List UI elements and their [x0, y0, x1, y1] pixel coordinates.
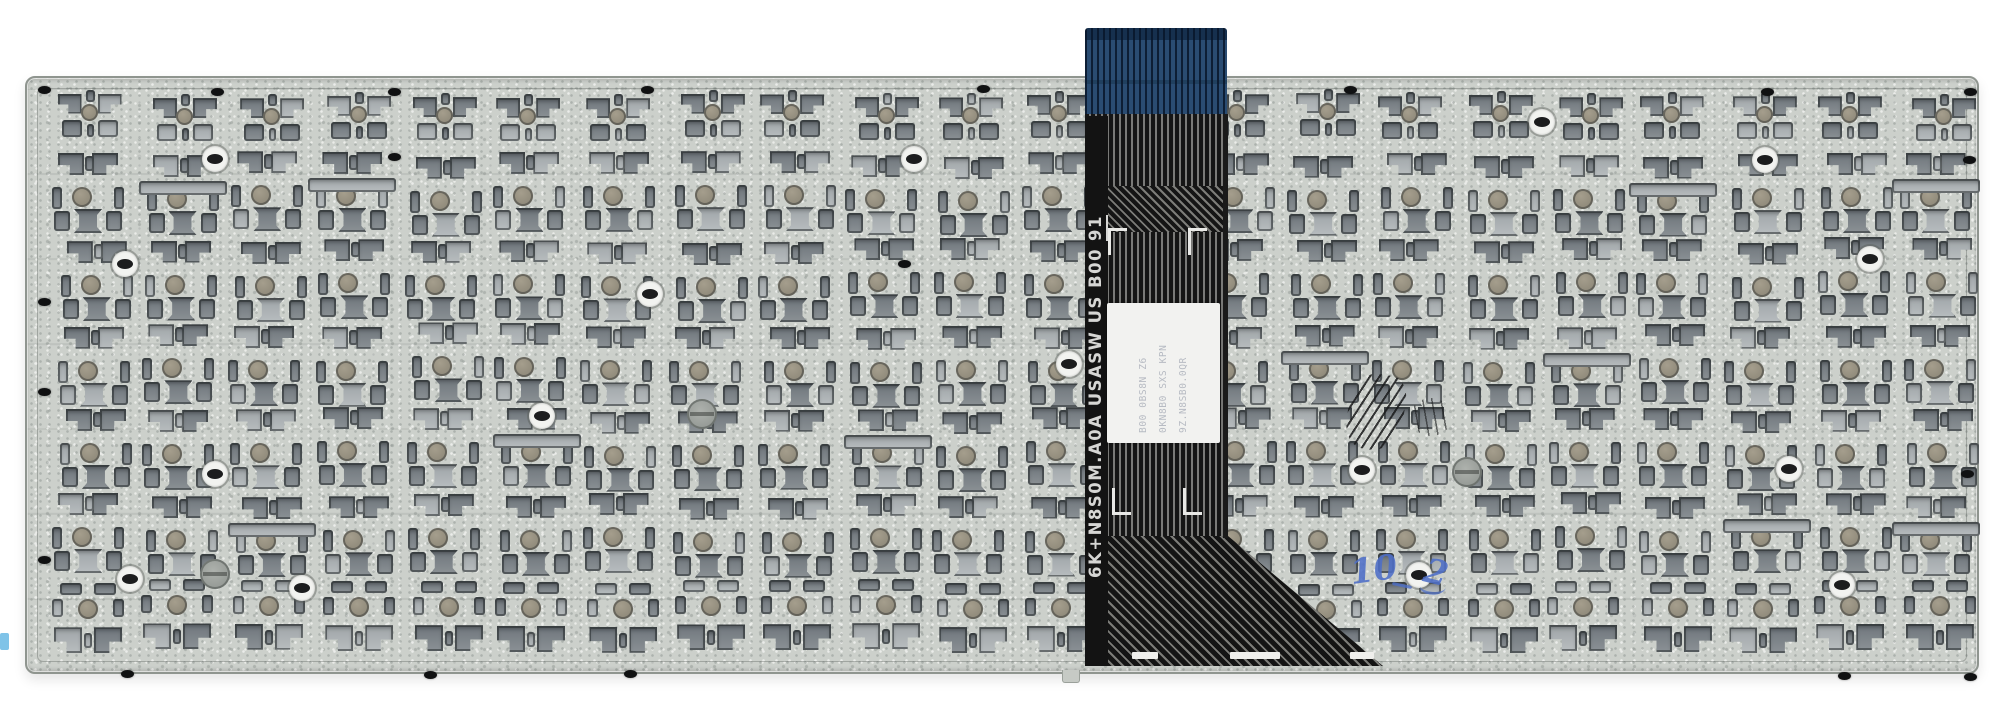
cutout-shape — [1497, 91, 1506, 103]
cutout-shape — [142, 358, 152, 380]
cutout-shape — [60, 443, 70, 465]
cutout-shape — [701, 596, 721, 616]
cutout-shape — [761, 596, 772, 614]
cutout-shape — [410, 191, 420, 213]
cutout-shape — [1835, 444, 1855, 464]
screw-hole-ring — [1056, 351, 1082, 377]
cutout-shape — [1680, 122, 1700, 139]
cutout-shape — [1618, 272, 1628, 294]
cutout-shape — [969, 329, 978, 344]
cutout-shape — [537, 626, 565, 652]
rivet-hole — [641, 86, 654, 94]
cutout-shape — [1412, 326, 1438, 348]
key-mount-cluster — [761, 580, 833, 660]
key-mount-cluster — [1549, 408, 1621, 490]
cutout-shape — [956, 360, 976, 380]
key-mount-cluster — [1465, 91, 1537, 143]
cutout-shape — [899, 213, 915, 233]
cutout-shape — [1250, 385, 1266, 405]
cutout-shape — [527, 632, 535, 647]
cutout-shape — [600, 360, 620, 380]
label-text-line: B00 0BS8N Z6 — [1138, 313, 1149, 433]
cutout-shape — [1498, 413, 1507, 428]
cutout-shape — [316, 361, 326, 383]
cutout-shape — [780, 298, 808, 322]
cutout-shape — [324, 239, 350, 261]
cutout-shape — [1046, 296, 1074, 320]
cutout-shape — [581, 276, 591, 298]
key-mount-cluster — [1469, 495, 1541, 577]
cutout-shape — [587, 242, 613, 264]
cutout-shape — [464, 215, 480, 235]
key-mount-cluster — [493, 240, 565, 322]
cutout-shape — [199, 299, 215, 319]
cutout-shape — [974, 238, 1000, 260]
wide-key-bar — [1629, 183, 1717, 197]
rivet-hole — [1838, 672, 1851, 680]
cutout-shape — [1734, 301, 1750, 321]
cutout-shape — [1265, 187, 1275, 209]
cutout-shape — [143, 623, 171, 649]
cutout-shape — [1771, 493, 1797, 515]
cutout-shape — [626, 124, 646, 141]
cutout-shape — [804, 151, 830, 173]
cutout-shape — [1492, 105, 1509, 122]
cutout-shape — [204, 358, 214, 380]
cutout-shape — [416, 157, 442, 179]
cutout-shape — [258, 553, 286, 577]
rivet-hole — [624, 670, 637, 678]
cutout-shape — [1822, 551, 1838, 571]
cutout-shape — [614, 94, 623, 106]
key-mount-cluster — [1639, 497, 1711, 579]
cutout-shape — [58, 493, 84, 515]
cutout-shape — [157, 124, 177, 141]
cutout-shape — [1416, 495, 1442, 517]
cutout-shape — [1607, 213, 1623, 233]
cutout-shape — [469, 442, 479, 464]
cutout-shape — [768, 498, 794, 520]
key-mount-cluster — [1468, 583, 1540, 663]
cutout-shape — [336, 361, 356, 381]
fiducial-mark — [1183, 488, 1202, 515]
cutout-shape — [67, 241, 93, 263]
cutout-shape — [1645, 497, 1671, 519]
cutout-shape — [675, 327, 701, 349]
cutout-shape — [513, 186, 533, 206]
cutout-shape — [114, 467, 130, 487]
screw-hole-ring — [202, 146, 228, 172]
cutout-shape — [770, 151, 796, 173]
cutout-shape — [356, 126, 363, 139]
cutout-shape — [228, 360, 238, 382]
cutout-shape — [1610, 296, 1626, 316]
cutout-shape — [721, 94, 745, 114]
cutout-shape — [1471, 553, 1487, 573]
key-mount-cluster — [1636, 92, 1708, 144]
cutout-shape — [797, 330, 806, 345]
cutout-shape — [692, 445, 712, 465]
cutout-shape — [954, 272, 974, 292]
cutout-shape — [114, 187, 124, 209]
cutout-shape — [606, 468, 634, 492]
cutout-shape — [1418, 96, 1442, 116]
rivet-hole — [1961, 470, 1974, 478]
cutout-shape — [442, 127, 449, 140]
cutout-shape — [1821, 187, 1831, 209]
cutout-shape — [1435, 211, 1451, 231]
cutout-shape — [1531, 529, 1541, 551]
cutout-shape — [960, 213, 988, 237]
cutout-shape — [694, 467, 722, 491]
cutout-shape — [735, 532, 745, 554]
cutout-shape — [818, 209, 834, 229]
cutout-shape — [430, 550, 458, 574]
cutout-shape — [82, 465, 110, 489]
cutout-shape — [605, 549, 633, 573]
cutout-shape — [427, 442, 447, 462]
cutout-shape — [1937, 328, 1946, 343]
cutout-shape — [586, 98, 610, 118]
cutout-shape — [63, 299, 79, 319]
cutout-shape — [764, 361, 774, 383]
cutout-shape — [1308, 463, 1336, 487]
cutout-shape — [1045, 531, 1065, 551]
cutout-shape — [795, 501, 804, 516]
cutout-shape — [556, 598, 567, 616]
cutout-shape — [736, 596, 747, 614]
cutout-shape — [1582, 411, 1591, 426]
cutout-shape — [1421, 153, 1447, 175]
key-mount-cluster — [764, 327, 836, 409]
cutout-shape — [1759, 633, 1767, 648]
cutout-shape — [173, 629, 181, 644]
cutout-shape — [826, 361, 836, 383]
cutout-shape — [621, 242, 647, 264]
cutout-shape — [453, 97, 477, 117]
cutout-shape — [1398, 441, 1418, 461]
cutout-shape — [1940, 412, 1949, 427]
cutout-shape — [818, 385, 834, 405]
cutout-shape — [537, 582, 559, 594]
cutout-shape — [1726, 385, 1742, 405]
cutout-shape — [601, 276, 621, 296]
cutout-shape — [1328, 496, 1354, 518]
cutout-shape — [1443, 187, 1453, 209]
cutout-shape — [852, 623, 880, 649]
cutout-shape — [432, 213, 460, 237]
cutout-shape — [1588, 127, 1595, 140]
cutout-shape — [147, 299, 163, 319]
cutout-shape — [165, 275, 185, 295]
cutout-shape — [1055, 91, 1064, 103]
cutout-shape — [1745, 445, 1765, 465]
cutout-shape — [427, 297, 455, 321]
key-mount-cluster — [1900, 153, 1972, 235]
cutout-shape — [797, 154, 806, 169]
rivet-hole — [424, 671, 437, 679]
cutout-shape — [1946, 624, 1974, 650]
cutout-shape — [1639, 466, 1655, 486]
cutout-shape — [292, 443, 302, 465]
cutout-shape — [1498, 125, 1505, 138]
cutout-shape — [1595, 492, 1621, 514]
cutout-shape — [1382, 122, 1402, 139]
cutout-shape — [1855, 410, 1881, 432]
cutout-shape — [944, 157, 970, 179]
cutout-shape — [990, 470, 1006, 490]
cutout-shape — [467, 275, 477, 297]
cutout-shape — [521, 598, 541, 618]
cutout-shape — [1599, 123, 1619, 140]
key-mount-cluster — [1555, 93, 1627, 145]
cutout-shape — [764, 120, 784, 137]
key-mount-cluster — [582, 94, 654, 146]
cutout-shape — [93, 412, 102, 427]
cutout-shape — [495, 210, 511, 230]
cutout-shape — [1491, 551, 1519, 575]
cutout-shape — [1747, 467, 1775, 491]
cutout-shape — [434, 378, 462, 402]
cutout-shape — [499, 240, 525, 262]
cutout-shape — [963, 599, 983, 619]
cutout-shape — [958, 191, 978, 211]
cutout-shape — [1558, 296, 1574, 316]
cutout-shape — [533, 240, 559, 262]
cutout-shape — [938, 470, 954, 490]
cutout-shape — [1551, 466, 1567, 486]
cutout-shape — [791, 245, 800, 260]
cutout-shape — [1556, 272, 1566, 294]
cutout-shape — [645, 186, 655, 208]
cutout-shape — [193, 124, 213, 141]
cutout-shape — [850, 296, 866, 316]
cutout-shape — [513, 274, 533, 294]
cutout-shape — [646, 446, 656, 468]
cutout-shape — [371, 465, 387, 485]
cutout-shape — [1297, 240, 1323, 262]
cutout-shape — [98, 327, 124, 349]
cutout-shape — [1320, 159, 1329, 174]
cutout-shape — [602, 382, 630, 406]
cutout-shape — [349, 155, 358, 170]
cutout-shape — [1353, 274, 1363, 296]
cutout-shape — [1735, 583, 1757, 595]
cutout-shape — [585, 210, 601, 230]
cutout-shape — [1502, 498, 1511, 513]
cutout-shape — [430, 191, 450, 211]
cutout-shape — [1823, 211, 1839, 231]
cutout-shape — [1405, 329, 1414, 344]
cutout-shape — [1419, 626, 1447, 652]
cutout-shape — [503, 466, 519, 486]
cutout-shape — [1874, 384, 1890, 404]
key-mount-cluster — [1636, 239, 1708, 321]
cutout-shape — [1057, 632, 1065, 647]
cutout-shape — [1578, 294, 1606, 318]
cutout-shape — [497, 626, 525, 652]
cutout-shape — [1605, 385, 1621, 405]
cutout-shape — [1549, 625, 1577, 651]
cutout-shape — [1409, 498, 1418, 513]
cutout-shape — [87, 124, 94, 137]
cutout-shape — [874, 465, 902, 489]
cutout-shape — [1669, 126, 1676, 139]
cutout-shape — [615, 128, 622, 141]
cutout-shape — [1668, 598, 1688, 618]
cutout-shape — [1485, 444, 1505, 464]
cutout-shape — [812, 300, 828, 320]
wide-key-bar — [493, 434, 581, 448]
cutout-shape — [697, 207, 725, 231]
cutout-shape — [554, 554, 570, 574]
cutout-shape — [1345, 298, 1361, 318]
cutout-shape — [1906, 383, 1922, 403]
cutout-shape — [1788, 599, 1799, 617]
cutout-shape — [411, 241, 437, 263]
cutout-shape — [1926, 272, 1946, 292]
cutout-shape — [1243, 153, 1269, 175]
key-mount-cluster — [851, 93, 923, 145]
cutout-shape — [1650, 582, 1672, 594]
cutout-shape — [782, 532, 802, 552]
cutout-shape — [1048, 463, 1076, 487]
cutout-shape — [522, 552, 550, 576]
cutout-shape — [241, 580, 263, 592]
cutout-shape — [1773, 96, 1797, 116]
cutout-shape — [62, 120, 82, 137]
cutout-shape — [52, 527, 62, 549]
cutout-shape — [1377, 598, 1388, 616]
cutout-shape — [179, 499, 188, 514]
cutout-shape — [58, 153, 84, 175]
cutout-shape — [74, 209, 102, 233]
cutout-shape — [436, 107, 453, 124]
cutout-shape — [1816, 624, 1844, 650]
cutout-shape — [269, 500, 278, 515]
screw-hole-ring — [1752, 147, 1778, 173]
key-mount-cluster — [850, 579, 922, 659]
cutout-shape — [562, 530, 572, 552]
cutout-shape — [1902, 554, 1918, 574]
cutout-shape — [1225, 209, 1253, 233]
cutout-shape — [1245, 407, 1271, 429]
cutout-shape — [1737, 122, 1757, 139]
cutout-shape — [892, 579, 914, 591]
cutout-shape — [614, 245, 623, 260]
cutout-shape — [58, 94, 82, 114]
cutout-shape — [872, 550, 900, 574]
key-mount-cluster — [676, 243, 748, 325]
cutout-shape — [142, 444, 152, 466]
cutout-shape — [52, 599, 63, 617]
cutout-shape — [1310, 552, 1338, 576]
cutout-shape — [1028, 152, 1054, 174]
cutout-shape — [986, 554, 1002, 574]
cutout-shape — [677, 209, 693, 229]
cutout-shape — [1469, 328, 1495, 350]
cutout-shape — [92, 493, 118, 515]
key-mount-cluster — [936, 326, 1008, 408]
cutout-shape — [365, 625, 393, 651]
cutout-shape — [936, 360, 946, 382]
cutout-shape — [1573, 597, 1593, 617]
cutout-shape — [186, 496, 212, 518]
cutout-shape — [937, 599, 948, 617]
cutout-shape — [414, 380, 430, 400]
cutout-shape — [1875, 596, 1886, 614]
cutout-shape — [1056, 125, 1063, 138]
cutout-shape — [474, 597, 485, 615]
cutout-shape — [319, 465, 335, 485]
cutout-shape — [1306, 441, 1326, 461]
cutout-shape — [290, 555, 306, 575]
cutout-shape — [738, 277, 748, 299]
cutout-shape — [1773, 122, 1793, 139]
screw-hole-ring — [1349, 457, 1375, 483]
cutout-shape — [1940, 94, 1949, 106]
cutout-shape — [233, 209, 249, 229]
cutout-shape — [425, 275, 445, 295]
cutout-shape — [677, 624, 705, 650]
cutout-shape — [1910, 325, 1936, 347]
cutout-shape — [1237, 239, 1263, 261]
cutout-shape — [1916, 124, 1936, 141]
cutout-shape — [1912, 580, 1934, 592]
cutout-shape — [1026, 298, 1042, 318]
cutout-shape — [1637, 442, 1647, 464]
service-label: 9Z.N8SB0.0QR0KN8B0 SXS KPNB00 0BS8N Z6 — [1107, 303, 1220, 443]
cutout-shape — [672, 445, 682, 467]
cutout-shape — [1906, 496, 1932, 518]
cutout-shape — [678, 301, 694, 321]
cutout-shape — [1494, 599, 1514, 619]
key-mount-cluster — [756, 90, 828, 142]
cutout-shape — [1929, 465, 1957, 489]
cutout-shape — [180, 158, 189, 173]
cutout-shape — [895, 123, 915, 140]
cutout-shape — [445, 325, 454, 340]
cutout-shape — [904, 386, 920, 406]
cutout-shape — [1840, 360, 1860, 380]
key-mount-cluster — [494, 323, 566, 405]
cutout-shape — [462, 552, 478, 572]
cutout-shape — [940, 215, 956, 235]
cutout-shape — [1875, 211, 1891, 231]
cutout-shape — [969, 415, 978, 430]
cutout-shape — [726, 469, 742, 489]
cutout-shape — [878, 107, 895, 124]
cutout-shape — [868, 272, 888, 292]
cutout-shape — [637, 551, 653, 571]
cutout-shape — [1912, 98, 1936, 118]
cutout-shape — [208, 530, 218, 552]
rivet-hole — [1344, 86, 1357, 94]
cutout-shape — [1258, 361, 1268, 383]
cutout-shape — [940, 238, 966, 260]
cutout-shape — [1438, 529, 1448, 551]
cutout-shape — [1032, 407, 1058, 429]
cutout-shape — [94, 627, 122, 653]
cutout-shape — [793, 630, 801, 645]
cutout-shape — [788, 90, 797, 102]
cutout-shape — [470, 528, 480, 550]
cutout-shape — [343, 530, 363, 550]
cutout-shape — [786, 383, 814, 407]
cutout-shape — [493, 274, 503, 296]
cutout-shape — [1238, 410, 1247, 425]
cutout-shape — [912, 528, 922, 550]
